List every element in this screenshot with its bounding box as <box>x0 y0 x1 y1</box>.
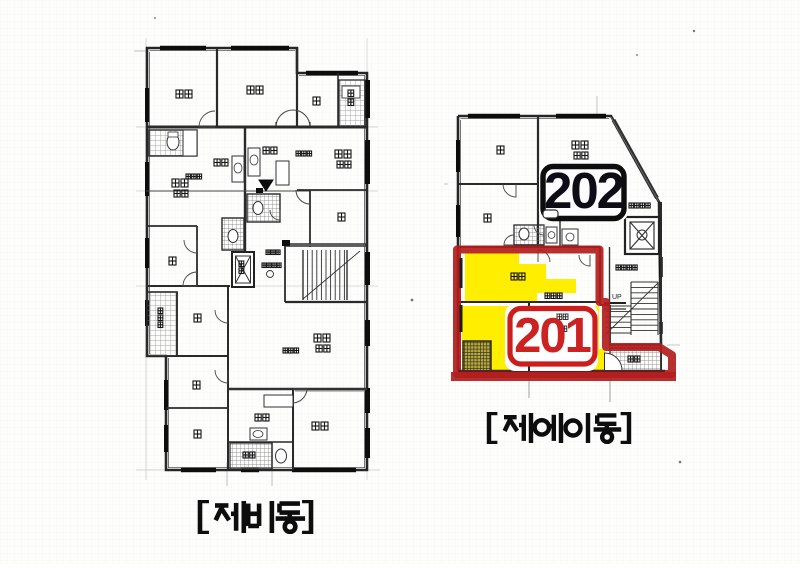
svg-text:201: 201 <box>514 309 591 363</box>
svg-text:UP: UP <box>612 294 622 301</box>
